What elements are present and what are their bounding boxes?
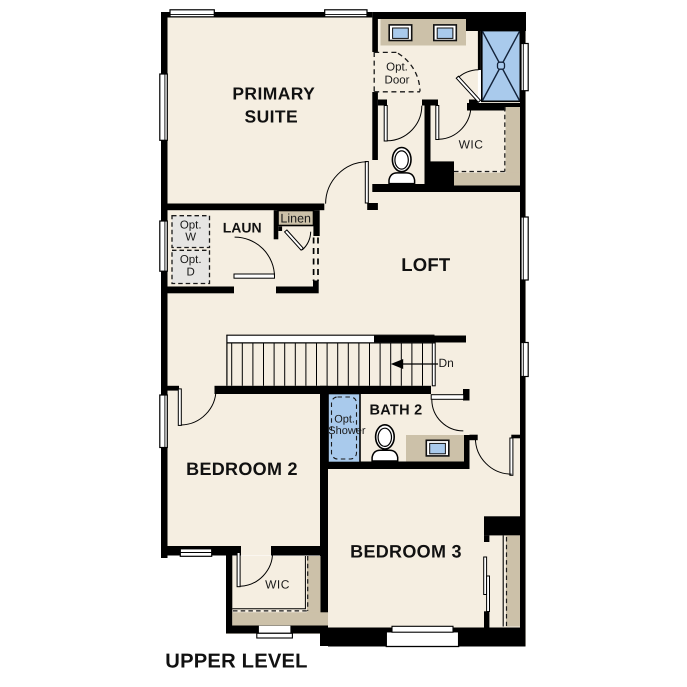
- svg-text:WIC: WIC: [265, 578, 290, 592]
- svg-text:BEDROOM 3: BEDROOM 3: [350, 542, 462, 562]
- svg-text:BATH 2: BATH 2: [369, 403, 422, 419]
- svg-text:WIC: WIC: [459, 138, 484, 152]
- svg-text:LAUN: LAUN: [223, 220, 262, 236]
- svg-text:Shower: Shower: [328, 425, 366, 437]
- svg-text:Opt.: Opt.: [386, 62, 408, 74]
- svg-text:D: D: [187, 267, 195, 279]
- svg-text:UPPER LEVEL: UPPER LEVEL: [165, 651, 307, 673]
- svg-text:BEDROOM 2: BEDROOM 2: [186, 459, 298, 479]
- svg-text:Opt.: Opt.: [334, 413, 355, 425]
- svg-text:Door: Door: [385, 75, 410, 87]
- svg-text:LOFT: LOFT: [401, 254, 451, 275]
- svg-text:PRIMARY: PRIMARY: [232, 83, 315, 103]
- svg-text:SUITE: SUITE: [245, 106, 299, 126]
- svg-text:Opt.: Opt.: [180, 220, 202, 232]
- svg-text:Opt.: Opt.: [180, 254, 202, 266]
- svg-text:Linen: Linen: [280, 211, 311, 225]
- svg-text:Dn: Dn: [439, 356, 454, 370]
- svg-text:W: W: [185, 232, 196, 244]
